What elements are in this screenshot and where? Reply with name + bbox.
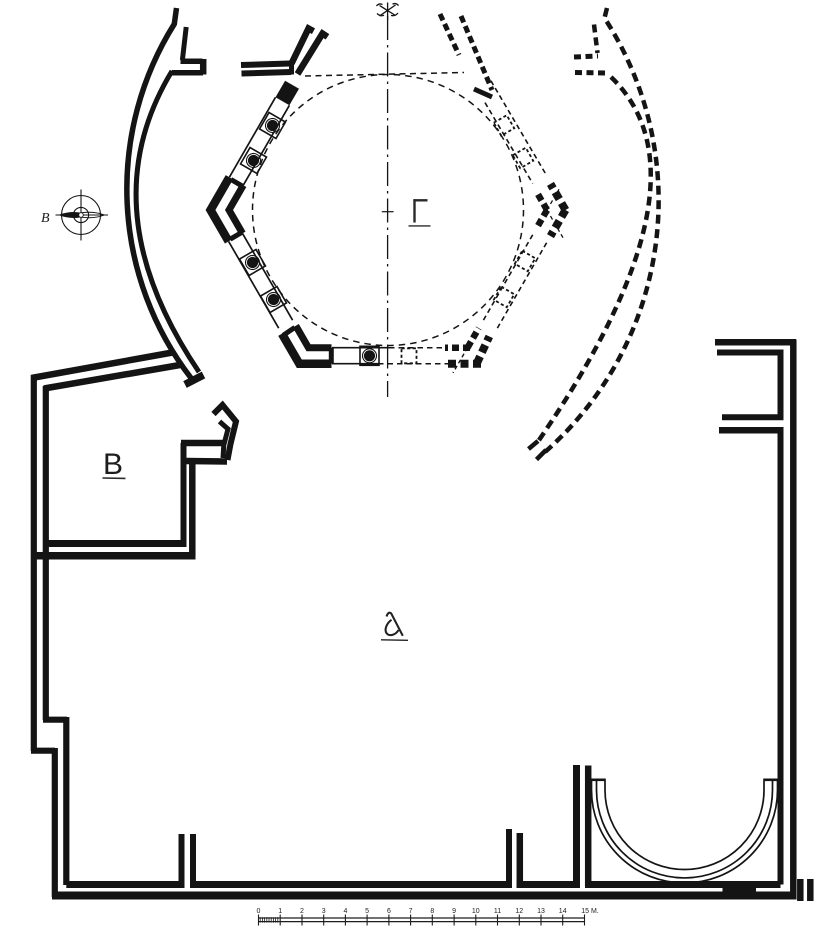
svg-text:3: 3: [322, 908, 326, 915]
svg-text:7: 7: [409, 908, 413, 915]
svg-text:2: 2: [300, 908, 304, 915]
svg-text:4: 4: [343, 908, 347, 915]
svg-text:13: 13: [537, 908, 545, 915]
svg-text:11: 11: [494, 908, 501, 915]
svg-text:8: 8: [430, 908, 434, 915]
svg-text:1: 1: [278, 908, 282, 915]
svg-text:10: 10: [472, 908, 480, 915]
svg-text:15 M.: 15 M.: [581, 908, 599, 915]
svg-text:B: B: [41, 211, 50, 226]
svg-text:0: 0: [257, 908, 261, 915]
svg-text:14: 14: [559, 908, 567, 915]
svg-text:9: 9: [452, 908, 456, 915]
svg-text:5: 5: [365, 908, 369, 915]
svg-text:6: 6: [387, 908, 391, 915]
svg-text:B: B: [103, 448, 123, 481]
svg-text:12: 12: [515, 908, 523, 915]
